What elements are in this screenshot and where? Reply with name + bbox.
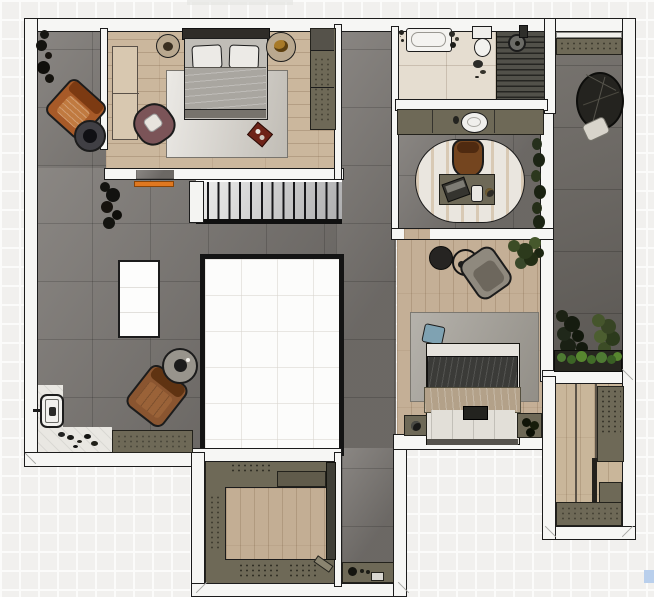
plant[interactable] bbox=[100, 182, 110, 192]
white-table[interactable] bbox=[118, 260, 160, 338]
duvet bbox=[427, 356, 518, 389]
bed[interactable] bbox=[426, 343, 520, 445]
shower-fixture bbox=[519, 25, 528, 38]
top-edge-band bbox=[187, 0, 293, 5]
bath-items bbox=[449, 31, 455, 37]
doormat[interactable] bbox=[134, 181, 174, 187]
terrace-plants[interactable] bbox=[556, 310, 568, 322]
closet-cabinet-small[interactable] bbox=[599, 482, 622, 503]
cup[interactable] bbox=[471, 185, 483, 202]
toilet[interactable] bbox=[474, 38, 491, 57]
room-entry-l[interactable] bbox=[36, 427, 112, 454]
counter-clutter bbox=[238, 563, 282, 579]
shoe-cabinet[interactable] bbox=[112, 430, 193, 453]
entry-door-unit[interactable] bbox=[40, 394, 64, 428]
console[interactable] bbox=[342, 562, 394, 583]
terrace-plants-green[interactable] bbox=[592, 314, 605, 327]
wall-closet-bottom[interactable] bbox=[542, 526, 636, 540]
vanity-item bbox=[453, 116, 459, 124]
wall-right-outer[interactable] bbox=[622, 18, 636, 540]
kitchen-floor-inset[interactable] bbox=[225, 487, 327, 560]
wardrobe[interactable] bbox=[310, 28, 336, 130]
sink[interactable] bbox=[461, 112, 488, 133]
door-handle bbox=[33, 409, 41, 412]
duvet bbox=[185, 67, 266, 109]
pillow bbox=[229, 44, 260, 69]
door-opening-bedroom1 bbox=[136, 170, 174, 179]
nightstand[interactable] bbox=[517, 413, 542, 438]
wall-kitchen-bottom[interactable] bbox=[191, 583, 407, 597]
nightstand[interactable] bbox=[266, 32, 296, 62]
desk-item bbox=[485, 188, 494, 197]
side-table[interactable] bbox=[74, 120, 106, 152]
room-corridor[interactable] bbox=[336, 22, 396, 456]
bed[interactable] bbox=[184, 38, 268, 120]
nightstand[interactable] bbox=[404, 415, 427, 436]
shoes[interactable] bbox=[58, 432, 65, 437]
room-terrace-right[interactable] bbox=[552, 20, 626, 376]
wall-closet-left[interactable] bbox=[542, 376, 556, 540]
wall-hall-right[interactable] bbox=[393, 436, 407, 597]
door-leaf[interactable] bbox=[189, 181, 204, 223]
desk-chair[interactable] bbox=[452, 139, 484, 177]
bath-items bbox=[399, 30, 404, 35]
kitchen-counter-step[interactable] bbox=[277, 471, 326, 487]
closet-floor-seam bbox=[575, 384, 577, 504]
bath-floor-items bbox=[473, 60, 483, 68]
wall-bottom-left[interactable] bbox=[24, 452, 200, 467]
plant[interactable] bbox=[40, 30, 49, 39]
storage-bench[interactable] bbox=[556, 38, 622, 55]
wall-kitchen-left[interactable] bbox=[191, 452, 205, 597]
counter-clutter bbox=[288, 563, 316, 579]
stairwell-void[interactable] bbox=[200, 254, 344, 456]
closet-cabinet-bottom[interactable] bbox=[556, 502, 622, 526]
wall-kitchen-top[interactable] bbox=[191, 448, 342, 462]
headboard bbox=[427, 439, 518, 445]
wall-left[interactable] bbox=[24, 18, 38, 467]
nightstand[interactable] bbox=[156, 34, 180, 58]
closet-cabinet[interactable] bbox=[597, 386, 624, 462]
counter-clutter bbox=[209, 495, 222, 550]
selection-square-artifact bbox=[644, 570, 654, 583]
laptop-on-bed bbox=[463, 406, 488, 420]
counter-clutter bbox=[230, 463, 270, 474]
side-table[interactable] bbox=[429, 246, 453, 270]
kitchen-tall-cabinet[interactable] bbox=[326, 462, 336, 560]
stairs[interactable] bbox=[196, 180, 342, 224]
bathtub[interactable] bbox=[406, 28, 452, 52]
window-plants[interactable] bbox=[532, 138, 542, 150]
door-opening-bedroom2 bbox=[404, 229, 430, 239]
planter-box[interactable] bbox=[554, 350, 622, 372]
potted-plant[interactable] bbox=[508, 240, 520, 252]
bed-foot-bench bbox=[185, 109, 266, 118]
pillow bbox=[191, 44, 222, 70]
floorplan-canvas bbox=[0, 0, 654, 597]
side-table[interactable] bbox=[162, 348, 198, 384]
wall-right-mid[interactable] bbox=[540, 102, 554, 382]
